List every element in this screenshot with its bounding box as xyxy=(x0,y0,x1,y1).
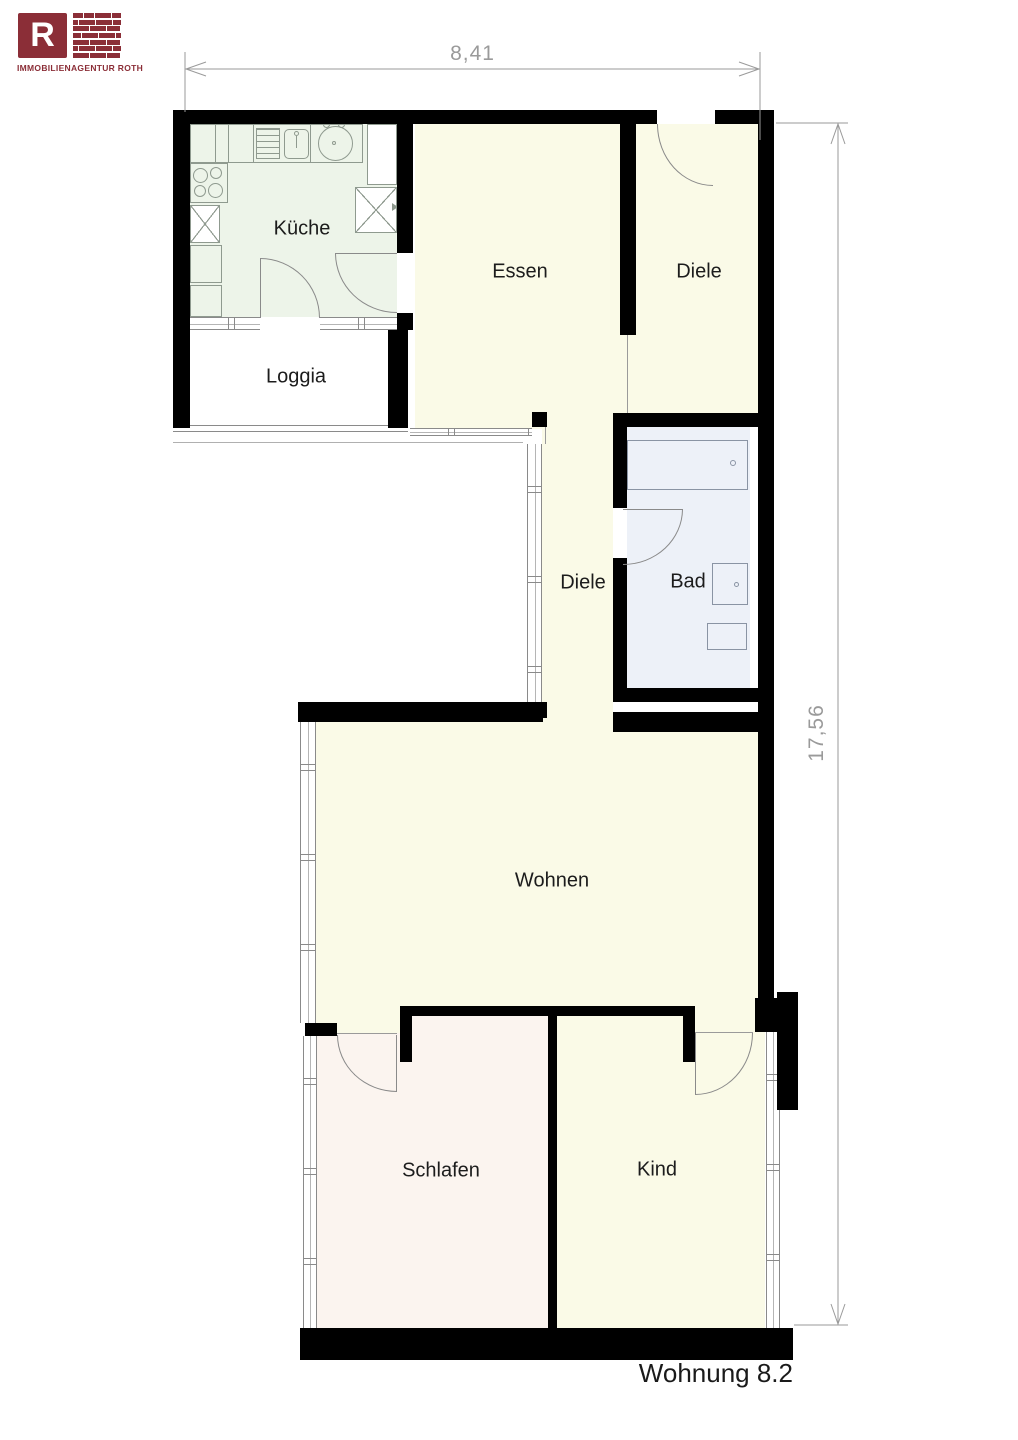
label-diele-mid: Diele xyxy=(560,572,606,595)
basin-faucet-icon xyxy=(734,582,739,587)
kitchen-cabinet xyxy=(190,285,222,317)
bathtub-faucet-icon xyxy=(730,460,736,466)
kitchen-counter-divider xyxy=(215,124,216,163)
kitchen-cabinet xyxy=(190,245,222,283)
wash-basin xyxy=(712,563,748,605)
logo-company-name: IMMOBILIENAGENTUR ROTH xyxy=(17,63,141,73)
shaft-box xyxy=(355,187,397,233)
wall-loggia-right xyxy=(388,330,408,428)
wall-wohnen-top-right xyxy=(613,712,758,732)
door-jamb-kind xyxy=(683,1006,695,1062)
label-bad: Bad xyxy=(670,571,706,594)
label-schlafen: Schlafen xyxy=(402,1160,480,1183)
wall-right xyxy=(758,110,774,1005)
wall-kind-top-right xyxy=(755,998,777,1032)
window-wohnen xyxy=(300,722,316,1023)
logo-mark: R xyxy=(18,13,67,58)
dimension-width: 8,41 xyxy=(430,42,515,66)
kitchen-counter-divider xyxy=(253,124,254,163)
wall-bad-left-upper xyxy=(613,427,627,508)
kitchen-appliance-box xyxy=(190,205,220,243)
wall-wohnen-top-left xyxy=(298,702,543,722)
passage-line-essen-diele xyxy=(627,335,628,413)
wall-essen-diele xyxy=(620,124,636,335)
wall-right-pillar xyxy=(777,992,798,1110)
floor-plan-canvas: R IMMOBILIENAGENTUR ROTH xyxy=(0,0,1018,1440)
kitchen-basin-drain-icon xyxy=(332,141,336,145)
stove-burner-icon xyxy=(194,185,206,197)
wall-schlafen-kind-top xyxy=(402,1006,688,1016)
wall-bad-bottom xyxy=(613,688,758,702)
stove-burner-icon xyxy=(193,168,208,183)
door-jamb-schlafen xyxy=(400,1006,412,1062)
wall-schlafen-kind-divider xyxy=(548,1006,557,1360)
stove-burner-icon xyxy=(210,167,222,179)
dimension-height: 17,56 xyxy=(805,697,839,769)
logo-brick-pattern-icon xyxy=(73,13,123,58)
wall-top-left xyxy=(173,110,657,124)
window-kueche-loggia xyxy=(190,317,260,330)
wall-bad-left-lower xyxy=(613,558,627,702)
window-kueche-loggia xyxy=(320,317,397,330)
wall-bottom xyxy=(300,1328,793,1360)
label-essen: Essen xyxy=(492,261,548,284)
window-schlafen xyxy=(303,1036,317,1328)
window-diele-corridor xyxy=(527,444,542,716)
label-kind: Kind xyxy=(637,1159,677,1182)
kitchen-drainer xyxy=(256,128,280,159)
kitchen-niche xyxy=(367,124,397,185)
kitchen-faucet-icon xyxy=(296,136,297,148)
wall-kueche-essen-stub xyxy=(397,313,413,330)
wall-wohnen-bottom-left-stub xyxy=(305,1023,337,1036)
plan-title: Wohnung 8.2 xyxy=(543,1358,793,1389)
exterior-boundary-line xyxy=(173,442,523,443)
label-wohnen: Wohnen xyxy=(515,870,589,893)
wall-left xyxy=(173,110,190,428)
label-loggia: Loggia xyxy=(266,366,326,389)
kitchen-counter-divider xyxy=(310,124,311,163)
wall-corridor-stub xyxy=(532,702,547,718)
logo-letter: R xyxy=(30,16,55,55)
wall-kueche-essen xyxy=(397,124,413,253)
toilet xyxy=(707,623,747,650)
wall-diele-bad-top xyxy=(613,413,758,427)
wall-stub-essen-corridor xyxy=(532,412,547,427)
room-passage xyxy=(620,335,636,413)
label-diele-top: Diele xyxy=(676,261,722,284)
kitchen-counter-divider xyxy=(228,124,229,163)
window-essen xyxy=(410,428,532,436)
stove-burner-icon xyxy=(208,183,223,198)
room-wohnen xyxy=(316,722,758,1006)
room-wohnen-door-sliver-right xyxy=(695,1006,755,1032)
label-kueche: Küche xyxy=(274,218,331,241)
door-head-line-schlafen xyxy=(337,1033,397,1034)
loggia-railing xyxy=(173,425,408,432)
